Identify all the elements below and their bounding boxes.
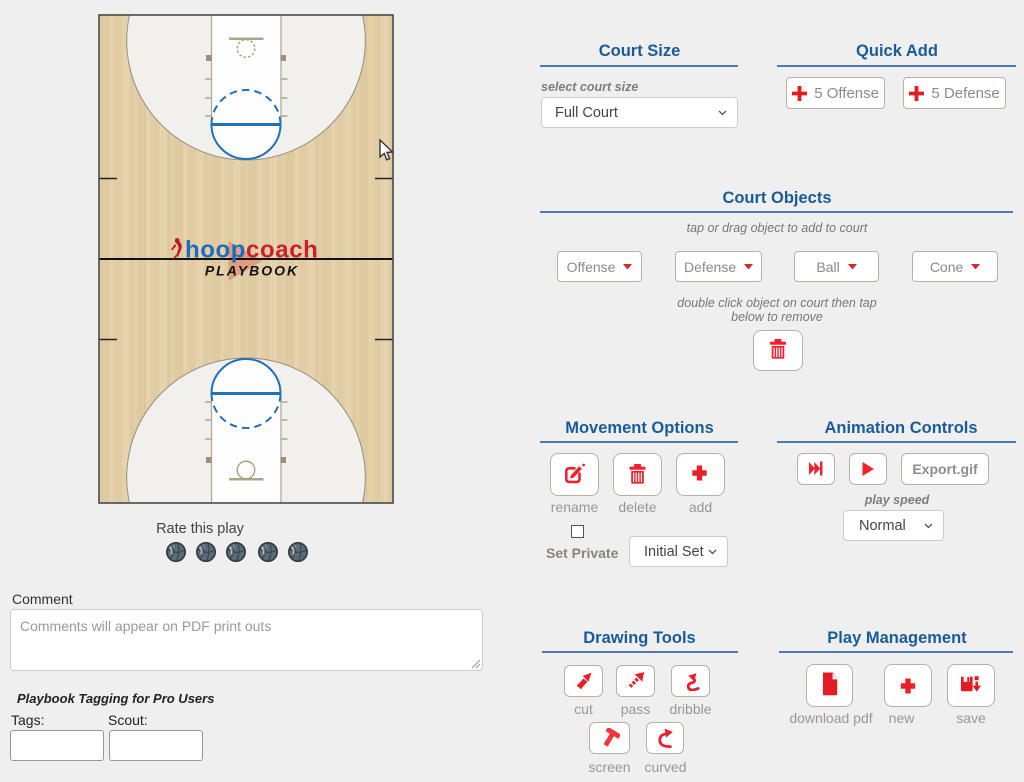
svg-text:hoopcoach: hoopcoach — [185, 237, 318, 264]
svg-text:PLAYBOOK: PLAYBOOK — [205, 263, 299, 279]
